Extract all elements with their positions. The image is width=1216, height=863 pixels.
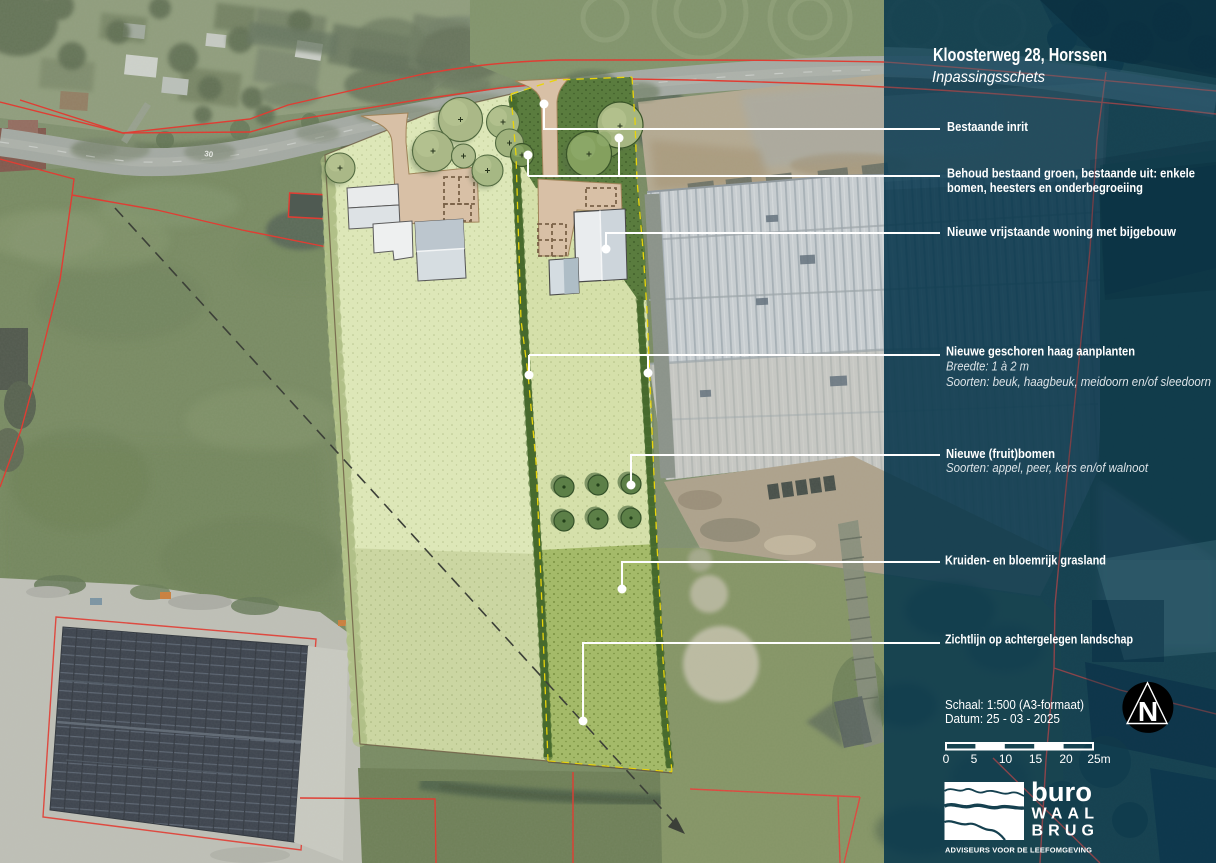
- svg-text:15: 15: [1029, 752, 1043, 766]
- svg-text:Soorten: beuk, haagbeuk, meido: Soorten: beuk, haagbeuk, meidoorn en/of …: [946, 375, 1211, 389]
- svg-text:Zichtlijn op achtergelegen lan: Zichtlijn op achtergelegen landschap: [945, 632, 1133, 647]
- svg-text:Bestaande inrit: Bestaande inrit: [947, 119, 1029, 134]
- svg-text:Soorten: appel, peer, kers en/: Soorten: appel, peer, kers en/of walnoot: [946, 461, 1148, 475]
- svg-text:25m: 25m: [1087, 752, 1110, 766]
- svg-text:Datum: 25 - 03 - 2025: Datum: 25 - 03 - 2025: [945, 711, 1060, 726]
- svg-text:Inpassingsschets: Inpassingsschets: [932, 69, 1045, 86]
- svg-text:N: N: [1138, 696, 1158, 727]
- svg-text:Nieuwe geschoren haag aanplant: Nieuwe geschoren haag aanplanten: [946, 344, 1135, 359]
- svg-text:Nieuwe vrijstaande woning met: Nieuwe vrijstaande woning met bijgebouw: [947, 224, 1177, 239]
- svg-text:Behoud bestaand groen, bestaan: Behoud bestaand groen, bestaande uit: en…: [947, 166, 1195, 181]
- svg-text:Nieuwe (fruit)bomen: Nieuwe (fruit)bomen: [946, 446, 1055, 461]
- svg-text:5: 5: [971, 752, 978, 766]
- svg-text:Schaal: 1:500 (A3-formaat): Schaal: 1:500 (A3-formaat): [945, 697, 1084, 712]
- svg-text:ADVISEURS VOOR DE LEEFOMGEVING: ADVISEURS VOOR DE LEEFOMGEVING: [945, 846, 1092, 855]
- svg-text:Kloosterweg 28, Horssen: Kloosterweg 28, Horssen: [933, 45, 1107, 65]
- svg-text:buro: buro: [1031, 777, 1092, 807]
- svg-text:0: 0: [943, 752, 950, 766]
- svg-text:10: 10: [999, 752, 1013, 766]
- svg-text:bomen, heesters en onderbegroe: bomen, heesters en onderbegroeiing: [947, 180, 1143, 195]
- svg-text:Breedte: 1 à 2 m: Breedte: 1 à 2 m: [946, 360, 1029, 374]
- svg-text:20: 20: [1059, 752, 1073, 766]
- svg-text:Kruiden- en bloemrijk grasland: Kruiden- en bloemrijk grasland: [945, 553, 1106, 568]
